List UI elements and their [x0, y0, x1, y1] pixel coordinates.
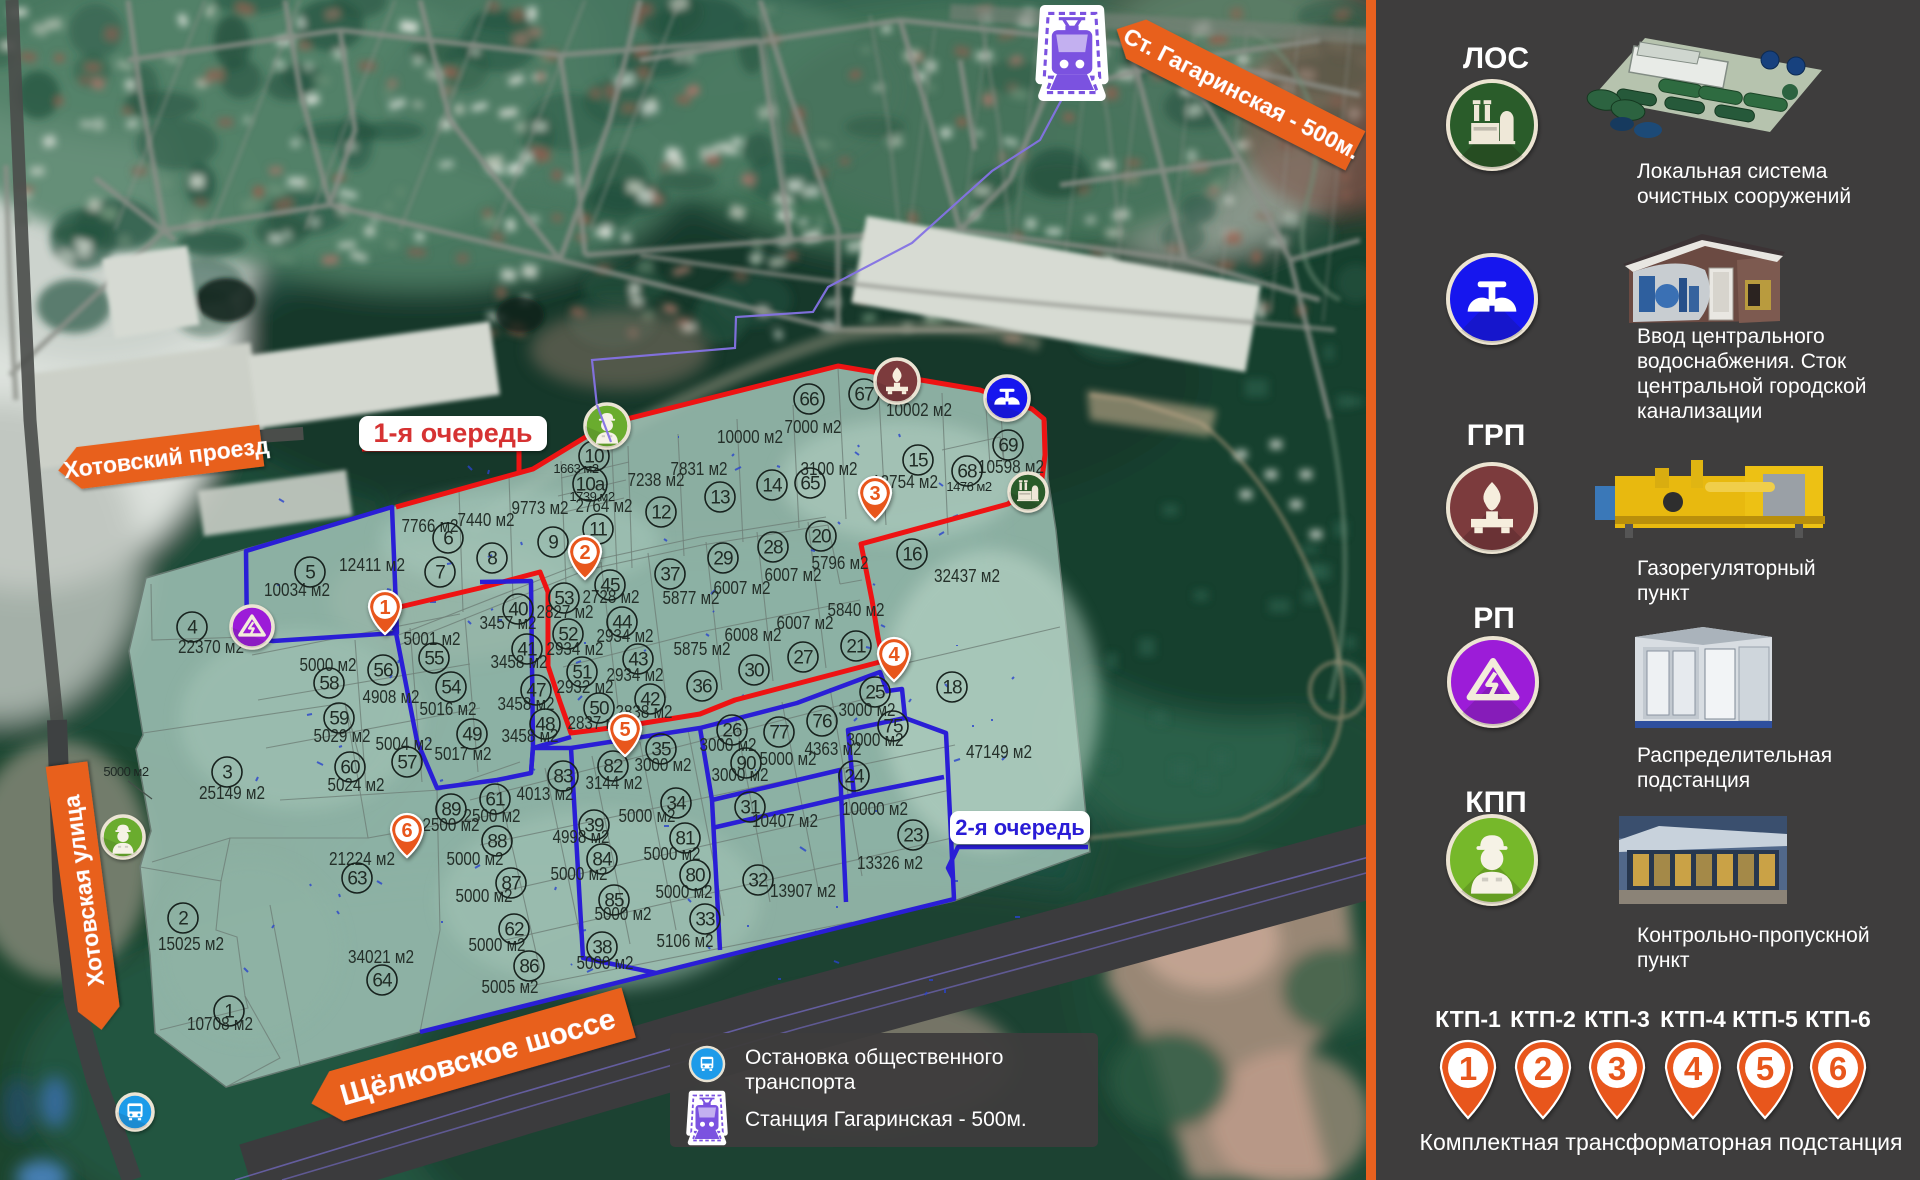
svg-text:36: 36 — [692, 677, 712, 698]
svg-text:5875 м2: 5875 м2 — [674, 639, 731, 659]
svg-text:6: 6 — [1829, 1050, 1847, 1087]
svg-text:2: 2 — [178, 909, 188, 930]
svg-text:1: 1 — [379, 597, 390, 619]
svg-text:75: 75 — [883, 717, 903, 738]
svg-text:26: 26 — [722, 721, 742, 742]
svg-text:10000 м2: 10000 м2 — [842, 799, 908, 819]
svg-text:34021 м2: 34021 м2 — [348, 947, 414, 967]
svg-text:КТП-4: КТП-4 — [1660, 1006, 1726, 1032]
svg-text:37: 37 — [660, 565, 680, 586]
svg-text:16: 16 — [902, 545, 922, 566]
svg-text:8: 8 — [487, 549, 497, 570]
svg-text:44: 44 — [612, 613, 633, 634]
svg-text:10407 м2: 10407 м2 — [752, 811, 818, 831]
svg-text:21224 м2: 21224 м2 — [329, 849, 395, 869]
svg-text:50: 50 — [589, 699, 609, 720]
svg-text:пункт: пункт — [1637, 582, 1690, 605]
svg-text:2: 2 — [579, 542, 590, 564]
svg-text:14: 14 — [762, 476, 783, 497]
svg-text:Газорегуляторный: Газорегуляторный — [1637, 557, 1816, 580]
svg-text:13907 м2: 13907 м2 — [770, 881, 836, 901]
svg-text:33: 33 — [695, 910, 715, 931]
svg-text:85: 85 — [604, 891, 624, 912]
svg-text:6008 м2: 6008 м2 — [725, 625, 782, 645]
svg-text:6007 м2: 6007 м2 — [714, 578, 771, 598]
svg-text:49: 49 — [462, 725, 482, 746]
svg-text:54: 54 — [441, 678, 462, 699]
svg-text:4908 м2: 4908 м2 — [363, 687, 420, 707]
svg-text:1: 1 — [224, 1002, 234, 1023]
svg-text:84: 84 — [592, 850, 613, 871]
svg-text:канализации: канализации — [1637, 400, 1762, 423]
svg-text:подстанция: подстанция — [1637, 769, 1750, 792]
svg-text:3: 3 — [1608, 1050, 1626, 1087]
svg-text:86: 86 — [519, 957, 539, 978]
svg-text:5005 м2: 5005 м2 — [482, 977, 539, 997]
svg-text:10000 м2: 10000 м2 — [717, 427, 783, 447]
svg-text:12: 12 — [651, 503, 671, 524]
svg-text:24: 24 — [844, 767, 865, 788]
svg-text:5: 5 — [1756, 1050, 1774, 1087]
svg-text:Комплектная трансформаторная п: Комплектная трансформаторная подстанция — [1420, 1129, 1903, 1155]
svg-text:3: 3 — [869, 483, 880, 505]
svg-text:КТП-1: КТП-1 — [1435, 1006, 1501, 1032]
svg-text:пункт: пункт — [1637, 949, 1690, 972]
svg-text:4: 4 — [187, 618, 198, 639]
svg-text:9: 9 — [548, 533, 558, 554]
svg-text:5: 5 — [619, 719, 630, 741]
svg-text:77: 77 — [769, 723, 789, 744]
svg-text:51: 51 — [572, 663, 592, 684]
svg-text:61: 61 — [485, 790, 505, 811]
svg-text:67: 67 — [854, 385, 874, 406]
svg-text:Станция Гагаринская - 500м.: Станция Гагаринская - 500м. — [745, 1108, 1027, 1131]
svg-text:4: 4 — [1684, 1050, 1703, 1087]
svg-text:5004 м2: 5004 м2 — [376, 734, 433, 754]
svg-text:43: 43 — [628, 650, 648, 671]
svg-text:5017 м2: 5017 м2 — [435, 744, 492, 764]
svg-text:ГРП: ГРП — [1467, 419, 1526, 452]
svg-text:9773 м2: 9773 м2 — [512, 498, 569, 518]
svg-text:28: 28 — [763, 538, 783, 559]
svg-text:13: 13 — [710, 488, 730, 509]
svg-text:80: 80 — [685, 866, 705, 887]
svg-text:6: 6 — [443, 529, 453, 550]
svg-text:38: 38 — [592, 938, 612, 959]
svg-text:27: 27 — [793, 648, 813, 669]
svg-text:55: 55 — [424, 649, 444, 670]
svg-text:56: 56 — [373, 661, 393, 682]
svg-text:7831 м2: 7831 м2 — [671, 459, 728, 479]
svg-text:5000 м2: 5000 м2 — [300, 655, 357, 675]
svg-text:20: 20 — [811, 527, 831, 548]
svg-text:2-я очередь: 2-я очередь — [955, 815, 1085, 840]
svg-text:10a: 10a — [576, 475, 606, 496]
svg-text:5000 м2: 5000 м2 — [103, 764, 148, 779]
svg-text:39: 39 — [584, 816, 604, 837]
svg-text:82: 82 — [603, 757, 623, 778]
svg-text:60: 60 — [340, 758, 360, 779]
svg-text:90: 90 — [736, 754, 756, 775]
svg-text:62: 62 — [504, 920, 524, 941]
svg-text:23: 23 — [903, 826, 923, 847]
svg-text:5840 м2: 5840 м2 — [828, 600, 885, 620]
svg-text:88: 88 — [487, 832, 507, 853]
svg-text:КТП-5: КТП-5 — [1732, 1006, 1798, 1032]
svg-text:Ввод центрального: Ввод центрального — [1637, 325, 1825, 348]
svg-text:1: 1 — [1459, 1050, 1477, 1087]
svg-text:66: 66 — [799, 390, 819, 411]
svg-text:6: 6 — [401, 820, 412, 842]
svg-text:32: 32 — [748, 871, 768, 892]
svg-text:31: 31 — [740, 798, 760, 819]
svg-text:34: 34 — [666, 794, 687, 815]
svg-text:Распределительная: Распределительная — [1637, 744, 1832, 767]
svg-text:КПП: КПП — [1465, 786, 1526, 819]
svg-text:45: 45 — [600, 576, 620, 597]
svg-text:5877 м2: 5877 м2 — [663, 588, 720, 608]
svg-text:Локальная система: Локальная система — [1637, 160, 1828, 183]
svg-text:76: 76 — [812, 712, 832, 733]
svg-text:41: 41 — [517, 640, 537, 661]
svg-text:35: 35 — [651, 740, 671, 761]
svg-text:6007 м2: 6007 м2 — [777, 613, 834, 633]
svg-text:30: 30 — [744, 661, 764, 682]
svg-text:57: 57 — [397, 753, 417, 774]
svg-text:42: 42 — [640, 690, 660, 711]
svg-text:5001 м2: 5001 м2 — [404, 629, 461, 649]
svg-text:Остановка общественного: Остановка общественного — [745, 1046, 1003, 1069]
svg-text:Контрольно-пропускной: Контрольно-пропускной — [1637, 924, 1870, 947]
svg-text:очистных сооружений: очистных сооружений — [1637, 185, 1851, 208]
svg-text:64: 64 — [372, 971, 393, 992]
svg-text:48: 48 — [535, 715, 555, 736]
svg-text:КТП-3: КТП-3 — [1584, 1006, 1650, 1032]
svg-text:водоснабжения. Сток: водоснабжения. Сток — [1637, 350, 1847, 373]
svg-text:центральной городской: центральной городской — [1637, 375, 1866, 398]
svg-text:4: 4 — [888, 644, 900, 666]
svg-text:21: 21 — [846, 637, 866, 658]
svg-text:1-я очередь: 1-я очередь — [373, 418, 532, 448]
svg-text:КТП-6: КТП-6 — [1805, 1006, 1871, 1032]
svg-text:7000 м2: 7000 м2 — [785, 417, 842, 437]
svg-text:транспорта: транспорта — [745, 1071, 856, 1094]
svg-text:58: 58 — [319, 674, 339, 695]
svg-text:РП: РП — [1473, 602, 1515, 635]
svg-text:40: 40 — [508, 600, 528, 621]
svg-text:83: 83 — [553, 767, 573, 788]
svg-text:68: 68 — [957, 462, 977, 483]
svg-text:47: 47 — [526, 681, 546, 702]
svg-text:КТП-2: КТП-2 — [1510, 1006, 1576, 1032]
svg-text:15: 15 — [908, 451, 928, 472]
svg-text:3: 3 — [222, 763, 232, 784]
svg-text:ЛОС: ЛОС — [1463, 42, 1529, 75]
svg-text:18: 18 — [942, 678, 962, 699]
svg-text:81: 81 — [675, 829, 695, 850]
svg-text:32437 м2: 32437 м2 — [934, 566, 1000, 586]
svg-text:25: 25 — [865, 683, 885, 704]
svg-text:2: 2 — [1534, 1050, 1552, 1087]
svg-text:7: 7 — [435, 563, 445, 584]
svg-text:10: 10 — [584, 447, 604, 468]
svg-text:6007 м2: 6007 м2 — [765, 565, 822, 585]
svg-text:63: 63 — [347, 869, 367, 890]
svg-text:13326 м2: 13326 м2 — [857, 853, 923, 873]
svg-text:47149 м2: 47149 м2 — [966, 742, 1032, 762]
svg-text:12411 м2: 12411 м2 — [339, 555, 405, 575]
svg-text:15025 м2: 15025 м2 — [158, 934, 224, 954]
svg-text:89: 89 — [441, 800, 461, 821]
svg-text:53: 53 — [554, 589, 574, 610]
svg-text:65: 65 — [800, 474, 820, 495]
svg-text:69: 69 — [998, 436, 1018, 457]
svg-text:59: 59 — [329, 709, 349, 730]
svg-text:52: 52 — [558, 625, 578, 646]
svg-text:29: 29 — [713, 549, 733, 570]
svg-text:87: 87 — [501, 874, 521, 895]
svg-text:5: 5 — [305, 563, 315, 584]
svg-text:7440 м2: 7440 м2 — [458, 510, 515, 530]
